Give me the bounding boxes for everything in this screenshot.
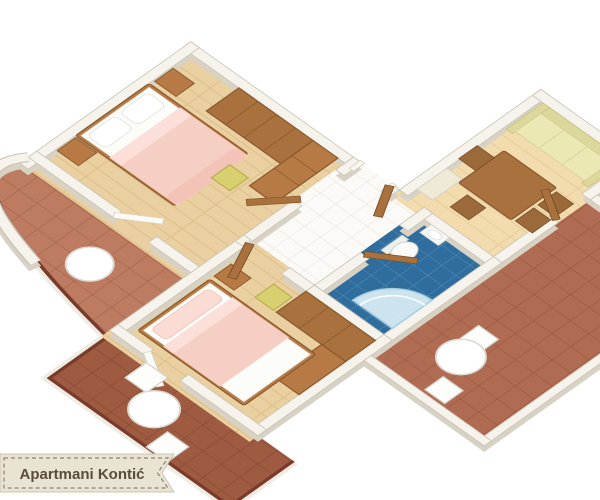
banner-label: Apartmani Kontić (19, 466, 144, 483)
title-banner: Apartmani Kontić (0, 454, 174, 492)
floor-plan-image: Apartmani Kontić (0, 0, 600, 500)
floor-plan-svg: Apartmani Kontić (0, 0, 600, 500)
